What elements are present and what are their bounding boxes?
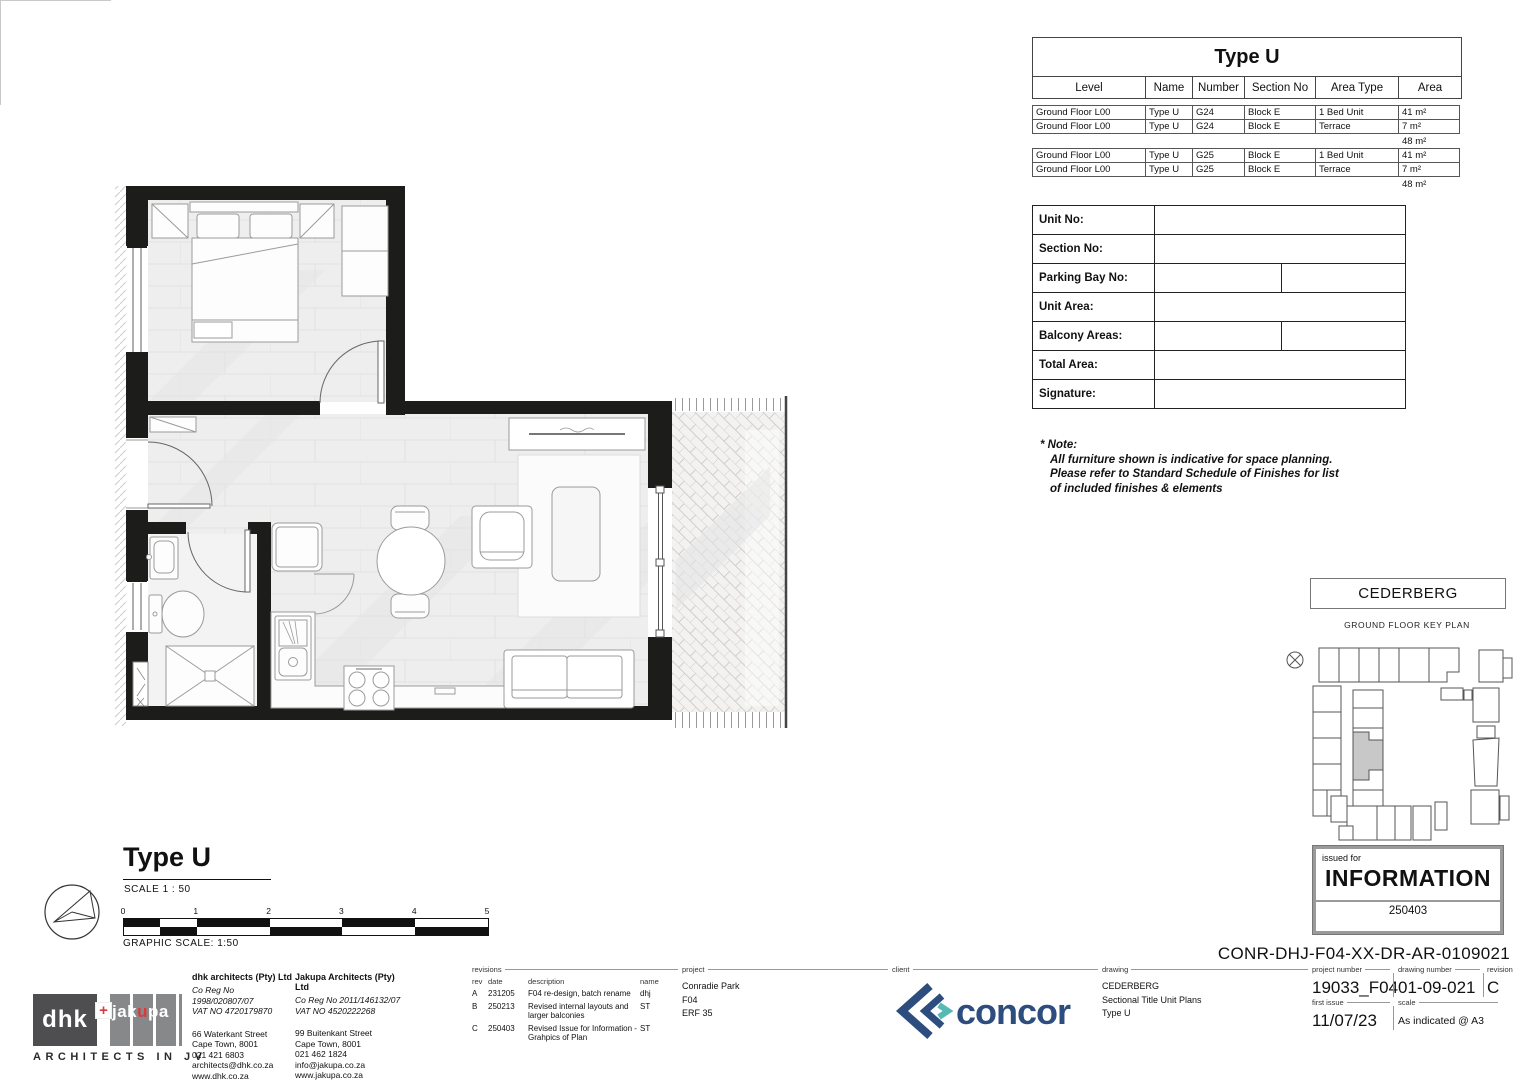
bathroom-window [127,577,147,637]
basin [147,537,179,579]
project-phase: F04 [682,994,888,1008]
form-label: Parking Bay No: [1033,264,1155,292]
bedroom-window [127,242,147,358]
north-arrow-icon [42,882,102,942]
drawing-type: Type U [1102,1007,1308,1021]
note-line: All furniture shown is indicative for sp… [1040,453,1410,468]
scale-label: scale [1398,998,1416,1007]
fridge [272,523,322,571]
client-label: client [892,965,910,974]
kitchen-sink [275,616,311,680]
g24-total-area: 48 m² [1402,134,1426,148]
dining-chair-bottom [391,594,429,618]
revision-label: revision [1487,965,1513,974]
scale-value: As indicated @ A3 [1398,1015,1498,1027]
architects-jv-caption: ARCHITECTS IN JV [33,1051,206,1063]
form-label: Total Area: [1033,351,1155,379]
drawing-series: Sectional Title Unit Plans [1102,994,1308,1008]
service-shaft [133,662,148,706]
table-row: Ground Floor L00Type U G25Block E 1 Bed … [1033,149,1460,163]
dhk-jakupa-logo: dhk jakupa + [33,994,183,1046]
firm-name: Jakupa Architects (Pty) Ltd [295,972,405,992]
table-row: Ground Floor L00Type U G24Block E 1 Bed … [1033,106,1460,120]
firm-address: 99 Buitenkant Street [295,1028,405,1039]
drawing-number: 01-09-021 [1398,978,1480,998]
form-label: Signature: [1033,380,1155,408]
key-plan-caption: GROUND FLOOR KEY PLAN [1300,620,1514,630]
first-issue-label: first issue [1312,998,1344,1007]
form-label: Unit No: [1033,206,1155,234]
first-issue-block: first issue 11/07/23 [1312,998,1390,1031]
plan-title-underline [123,879,271,880]
drawing-label: drawing [1102,965,1128,974]
scale-tick: 5 [485,906,490,916]
revision-block: revision C [1487,965,1523,998]
ground-floor-key-plan [1283,640,1515,845]
firm-vat: VAT NO 4720179870 [192,1006,292,1017]
dining-chair-top [391,506,429,530]
plan-scale-text: SCALE 1 : 50 [124,884,191,895]
tv-unit [509,418,645,450]
revision-row: A 231205 F04 re-design, batch rename dhj [472,989,678,999]
drawing-sheet: Type U SCALE 1 : 50 0 1 2 3 4 5 GRAPHIC … [0,0,1528,1080]
jakupa-logo-text: jakupa [112,1002,169,1022]
firm-web: www.dhk.co.za [192,1071,292,1080]
form-row-section-no: Section No: [1033,235,1405,264]
scale-block: scale As indicated @ A3 [1398,998,1498,1027]
unit-table-g24: Ground Floor L00Type U G24Block E 1 Bed … [1032,105,1460,134]
drawing-number-label: drawing number [1398,965,1452,974]
form-row-total-area: Total Area: [1033,351,1405,380]
titleblock-divider [1483,973,1484,997]
col-level: Level [1033,77,1146,98]
sliding-door [656,486,664,637]
rev-col-header: rev [472,977,488,986]
note-line: * Note: [1040,438,1410,453]
terrace-edge-hatch-top [672,398,786,411]
col-number: Number [1193,77,1245,98]
form-label: Unit Area: [1033,293,1155,321]
form-label: Balcony Areas: [1033,322,1155,350]
titleblock-divider [1393,973,1394,997]
note-line: Please refer to Standard Schedule of Fin… [1040,467,1410,482]
form-row-balcony-areas: Balcony Areas: [1033,322,1405,351]
concor-logo: concor [892,980,1092,1042]
toilet [149,591,204,637]
form-row-signature: Signature: [1033,380,1405,408]
form-row-parking-bay: Parking Bay No: [1033,264,1405,293]
jakupa-logo: jakupa [110,994,182,1046]
plan-view-title: Type U [123,842,211,873]
bedside-table-right [300,204,334,238]
floor-plan [0,0,820,760]
firm-address: Cape Town, 8001 [192,1039,292,1050]
col-name: Name [1146,77,1193,98]
rev-col-header: name [640,977,666,986]
firm-web: www.jakupa.co.za [295,1070,405,1080]
stove [344,666,394,710]
counter-item [435,688,455,694]
note-line: of included finishes & elements [1040,482,1410,497]
firm-vat: VAT NO 4520222268 [295,1006,405,1017]
dining-table [377,527,445,595]
project-number-label: project number [1312,965,1362,974]
armchair [472,506,532,568]
terrace-edge-hatch-bottom [672,712,786,728]
project-block: project Conradie Park F04 ERF 35 [682,965,888,1021]
rev-col-header: date [488,977,528,986]
furniture-note: * Note: All furniture shown is indicativ… [1040,438,1410,496]
terrace-light-band [745,430,779,706]
project-number: 19033_F04 [1312,978,1390,998]
unit-info-form: Unit No: Section No: Parking Bay No: Uni… [1032,205,1406,409]
sofa [504,650,634,708]
dhk-logo: dhk [33,994,97,1046]
table-row: Ground Floor L00Type U G25Block E Terrac… [1033,163,1460,177]
jakupa-details: Jakupa Architects (Pty) Ltd Co Reg No 20… [295,972,405,1080]
graphic-scale-label: GRAPHIC SCALE: 1:50 [123,938,239,949]
building-name-box: CEDERBERG [1310,578,1506,609]
project-label: project [682,965,705,974]
adjacent-structure-hatch [115,186,126,726]
drawing-block: drawing CEDERBERG Sectional Title Unit P… [1102,965,1308,1021]
cell-divider [1281,264,1282,292]
g25-total-area: 48 m² [1402,177,1426,191]
revisions-block: revisions rev date description name A 23… [472,965,678,1043]
scale-tick: 4 [412,906,417,916]
firm-address: Cape Town, 8001 [295,1039,405,1050]
col-areatype: Area Type [1316,77,1399,98]
issued-for-label: issued for [1316,849,1500,863]
project-name: Conradie Park [682,980,888,994]
drawing-building: CEDERBERG [1102,980,1308,994]
table-row: Ground Floor L00Type U G24Block E Terrac… [1033,120,1460,134]
form-label: Section No: [1033,235,1155,263]
firm-name: dhk architects (Pty) Ltd [192,972,292,982]
graphic-scale-bar: 0 1 2 3 4 5 [123,918,489,936]
shower [166,646,254,706]
project-erf: ERF 35 [682,1007,888,1021]
full-drawing-code: CONR-DHJ-F04-XX-DR-AR-0109021 [1150,944,1510,964]
firm-reg: Co Reg No 2011/146132/07 [295,995,405,1006]
titleblock-divider [1393,1006,1394,1030]
issued-for-code: 250403 [1316,902,1500,920]
unit-schedule-header: Type U Level Name Number Section No Area… [1032,37,1462,99]
col-section: Section No [1245,77,1316,98]
revision-row: B 250213 Revised internal layouts and la… [472,1002,678,1021]
col-area: Area [1399,77,1461,98]
issued-for-status: INFORMATION [1316,865,1500,892]
bedside-table-left [152,204,188,238]
revision-value: C [1487,978,1523,998]
firm-reg: Co Reg No 1998/020807/07 [192,985,292,1006]
firm-email: info@jakupa.co.za [295,1060,405,1071]
unit-table-g25: Ground Floor L00Type U G25Block E 1 Bed … [1032,148,1460,177]
dhk-details: dhk architects (Pty) Ltd Co Reg No 1998/… [192,972,292,1080]
cell-divider [1281,322,1282,350]
drawing-number-block: drawing number 01-09-021 [1398,965,1480,998]
first-issue-date: 11/07/23 [1312,1011,1390,1031]
project-number-block: project number 19033_F04 [1312,965,1390,998]
firm-email: architects@dhk.co.za [192,1060,292,1071]
scale-tick: 2 [266,906,271,916]
revision-row: C 250403 Revised Issue for Information -… [472,1024,678,1043]
scale-tick: 1 [193,906,198,916]
plus-logo-icon: + [95,1002,112,1019]
form-row-unit-no: Unit No: [1033,206,1405,235]
wardrobe [342,206,388,296]
firm-phone: 021 462 1824 [295,1049,405,1060]
client-block: client concor [892,965,1098,1047]
scale-tick: 3 [339,906,344,916]
firm-address: 66 Waterkant Street [192,1029,292,1040]
revisions-label: revisions [472,965,502,974]
coffee-table [552,487,600,581]
issued-for-box: issued for INFORMATION 250403 [1313,846,1503,934]
unit-schedule-title: Type U [1033,38,1461,77]
form-row-unit-area: Unit Area: [1033,293,1405,322]
scale-tick: 0 [121,906,126,916]
firm-phone: 021 421 6803 [192,1050,292,1061]
svg-text:concor: concor [956,991,1071,1032]
entry-shelf [150,417,196,432]
rev-col-header: description [528,977,640,986]
